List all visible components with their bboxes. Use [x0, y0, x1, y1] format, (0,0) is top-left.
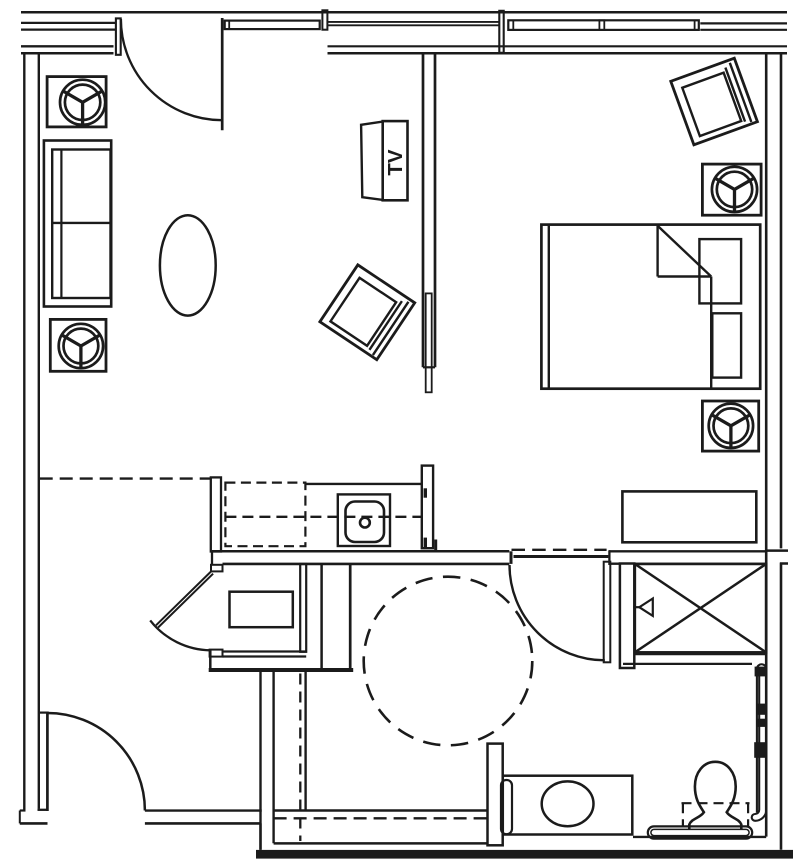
svg-text:TV: TV	[384, 149, 407, 176]
